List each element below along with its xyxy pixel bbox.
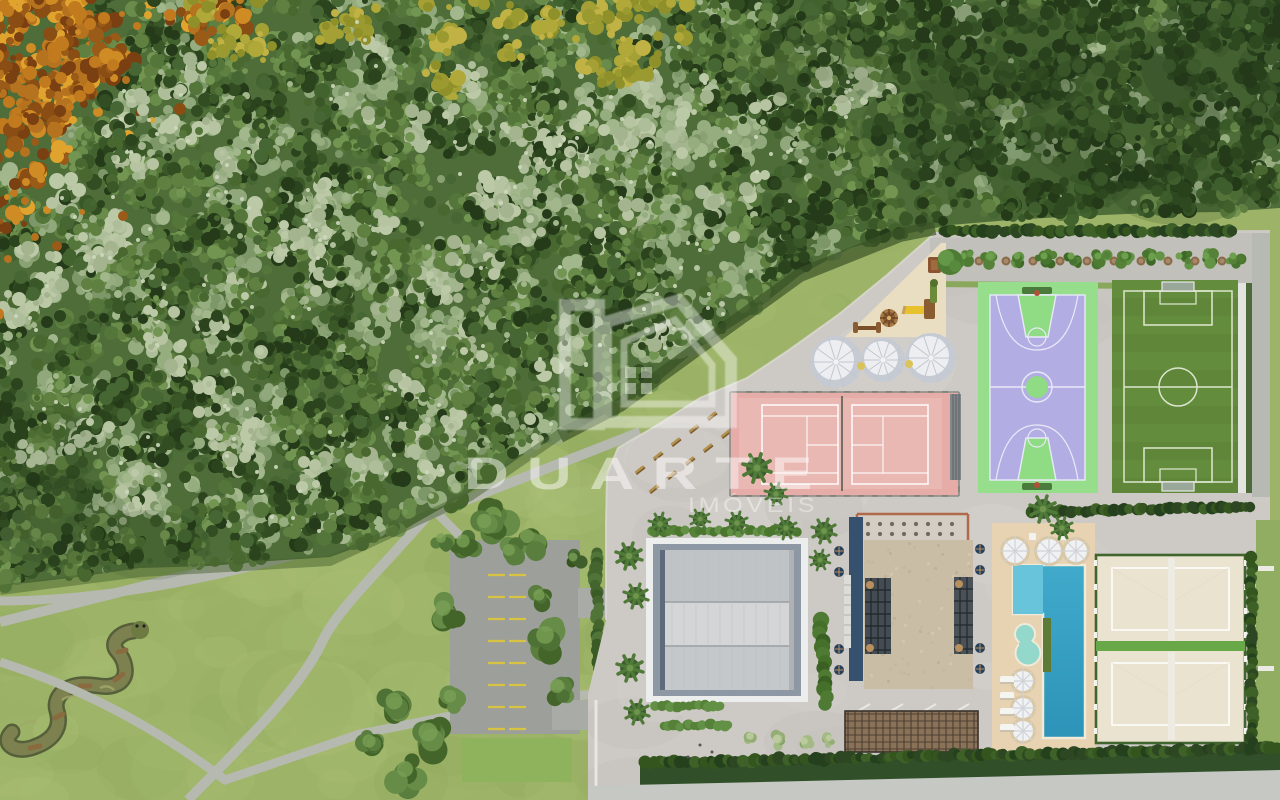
svg-text:DUARTE: DUARTE <box>464 449 830 499</box>
svg-text:IMÓVEIS: IMÓVEIS <box>688 493 818 517</box>
